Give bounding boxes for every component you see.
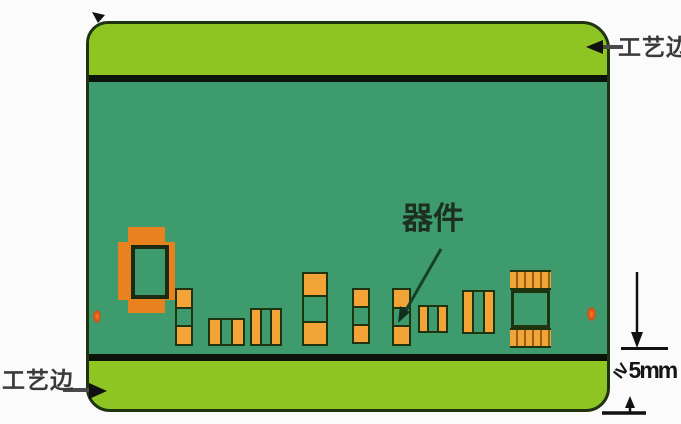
- process-edge-strip-top: [89, 24, 607, 75]
- component-pad: [177, 290, 191, 307]
- component-body: [260, 310, 272, 344]
- component-ic-multipin: [510, 270, 551, 348]
- component-pad: [439, 307, 446, 331]
- component-pad: [177, 327, 191, 344]
- fiducial-mark-left: [93, 310, 101, 323]
- component-body: [394, 307, 409, 328]
- dimension-value: 5mm: [629, 357, 677, 384]
- process-edge-label-top: 工艺边: [618, 35, 681, 60]
- component-pad: [394, 290, 409, 307]
- component-chip-vertical: [352, 288, 370, 344]
- component-body: [354, 306, 368, 326]
- component-pad: [272, 310, 280, 344]
- component-pin-row: [510, 328, 551, 348]
- component-body: [304, 295, 326, 323]
- dimension-text: ≥ 5mm: [615, 357, 676, 384]
- component-chip-vertical-pointed: [392, 288, 411, 346]
- component-pin-row: [510, 270, 551, 290]
- component-pad: [304, 323, 326, 344]
- component-pad: [210, 320, 220, 344]
- component-pad: [354, 326, 368, 342]
- component-outline: [131, 245, 169, 299]
- component-pad: [304, 274, 326, 295]
- component-chip-vertical: [175, 288, 193, 346]
- component-chip-vertical-tall: [302, 272, 328, 346]
- component-body: [427, 307, 438, 331]
- component-body: [220, 320, 234, 344]
- component-chip-horizontal: [208, 318, 245, 346]
- component-pad: [252, 310, 260, 344]
- component-large-smd: [118, 227, 175, 313]
- component-body: [472, 292, 484, 332]
- component-pad: [354, 290, 368, 306]
- v-cut-line-top: [89, 75, 607, 82]
- pcb-board: [86, 21, 610, 412]
- process-edge-label-bottom: 工艺边: [2, 368, 74, 393]
- component-chip-horizontal: [462, 290, 495, 334]
- component-body: [511, 290, 550, 328]
- component-pad: [233, 320, 243, 344]
- component-pad: [128, 298, 165, 313]
- v-cut-line-bottom: [89, 354, 607, 361]
- component-chip-horizontal: [250, 308, 282, 346]
- pcb-panel-diagram: 工艺边 工艺边 器件 ≥ 5mm: [0, 0, 681, 424]
- component-pad: [394, 327, 409, 344]
- fiducial-mark-right: [587, 307, 596, 321]
- component-label: 器件: [402, 202, 464, 236]
- component-pad: [464, 292, 472, 332]
- component-pad: [485, 292, 493, 332]
- process-edge-strip-bottom: [89, 361, 607, 409]
- dimension-lines: [602, 272, 668, 413]
- component-pad: [420, 307, 427, 331]
- component-body: [177, 307, 191, 328]
- component-chip-horizontal-small: [418, 305, 448, 333]
